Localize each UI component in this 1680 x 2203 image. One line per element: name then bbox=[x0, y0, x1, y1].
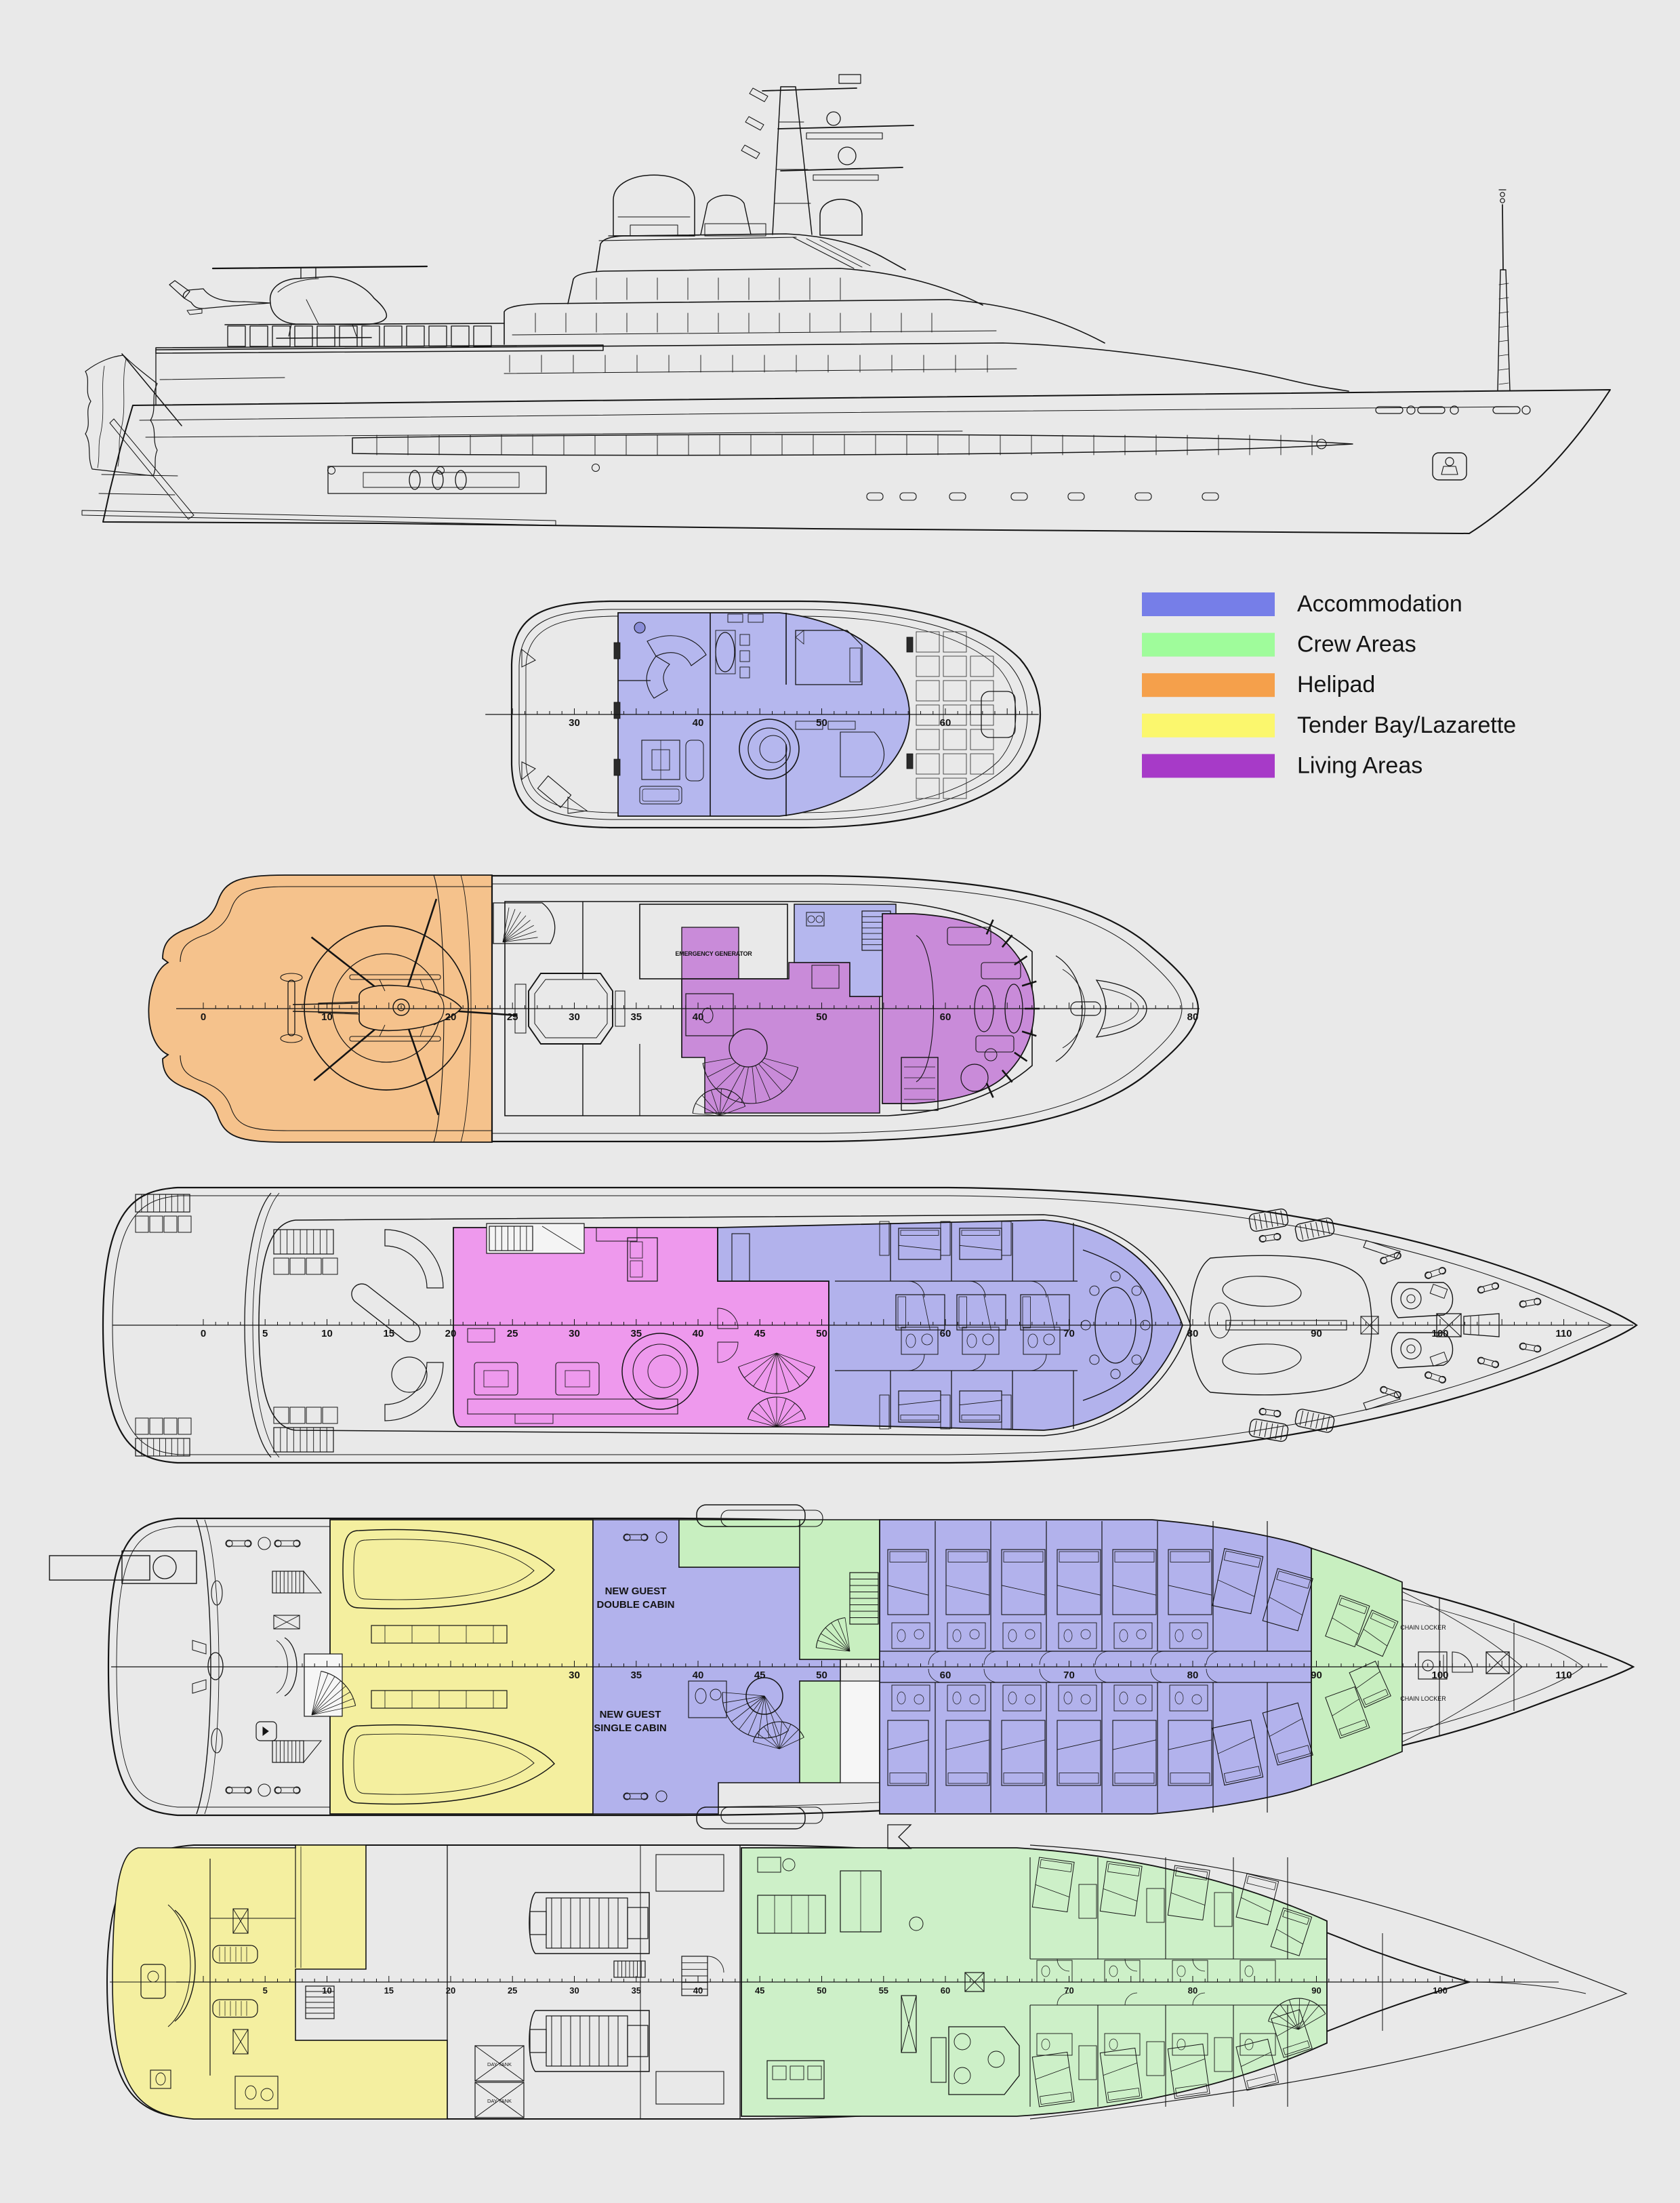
svg-text:60: 60 bbox=[941, 1985, 950, 1996]
svg-text:25: 25 bbox=[507, 1011, 518, 1023]
svg-text:Accommodation: Accommodation bbox=[1297, 591, 1462, 617]
svg-text:25: 25 bbox=[507, 1328, 518, 1339]
svg-text:CHAIN LOCKER: CHAIN LOCKER bbox=[1400, 1695, 1446, 1702]
svg-text:70: 70 bbox=[1063, 1670, 1075, 1681]
svg-text:20: 20 bbox=[445, 1011, 457, 1023]
svg-text:25: 25 bbox=[508, 1985, 517, 1996]
svg-text:40: 40 bbox=[693, 1011, 704, 1023]
svg-text:SINGLE CABIN: SINGLE CABIN bbox=[594, 1722, 667, 1734]
svg-text:Living Areas: Living Areas bbox=[1297, 752, 1422, 778]
svg-text:50: 50 bbox=[816, 1011, 827, 1023]
svg-text:EMERGENCY GENERATOR: EMERGENCY GENERATOR bbox=[675, 950, 752, 957]
svg-text:90: 90 bbox=[1311, 1670, 1322, 1681]
svg-text:DAY TANK: DAY TANK bbox=[487, 2061, 512, 2067]
svg-text:60: 60 bbox=[940, 1328, 951, 1339]
svg-text:0: 0 bbox=[201, 1328, 206, 1339]
svg-text:100: 100 bbox=[1433, 1985, 1448, 1996]
svg-text:Tender Bay/Lazarette: Tender Bay/Lazarette bbox=[1297, 712, 1516, 738]
svg-text:80: 80 bbox=[1187, 1328, 1199, 1339]
svg-text:CHAIN LOCKER: CHAIN LOCKER bbox=[1400, 1624, 1446, 1631]
svg-text:45: 45 bbox=[754, 1670, 766, 1681]
svg-text:45: 45 bbox=[755, 1985, 764, 1996]
svg-text:80: 80 bbox=[1187, 1670, 1199, 1681]
svg-text:30: 30 bbox=[569, 1670, 580, 1681]
svg-text:40: 40 bbox=[693, 1670, 704, 1681]
svg-text:35: 35 bbox=[632, 1985, 641, 1996]
svg-text:40: 40 bbox=[693, 1985, 703, 1996]
svg-text:80: 80 bbox=[1188, 1985, 1197, 1996]
svg-text:100: 100 bbox=[1431, 1670, 1448, 1681]
svg-text:55: 55 bbox=[879, 1985, 888, 1996]
svg-text:35: 35 bbox=[630, 1670, 642, 1681]
svg-text:35: 35 bbox=[630, 1328, 642, 1339]
svg-text:Crew Areas: Crew Areas bbox=[1297, 632, 1416, 658]
svg-text:45: 45 bbox=[754, 1328, 766, 1339]
svg-text:50: 50 bbox=[816, 1670, 827, 1681]
svg-text:50: 50 bbox=[817, 1985, 826, 1996]
svg-text:70: 70 bbox=[1063, 1328, 1075, 1339]
svg-text:DOUBLE CABIN: DOUBLE CABIN bbox=[597, 1599, 675, 1611]
svg-text:10: 10 bbox=[322, 1985, 331, 1996]
svg-text:15: 15 bbox=[384, 1985, 394, 1996]
svg-text:90: 90 bbox=[1311, 1985, 1321, 1996]
svg-text:100: 100 bbox=[1431, 1328, 1448, 1339]
svg-text:30: 30 bbox=[569, 1328, 580, 1339]
svg-text:NEW GUEST: NEW GUEST bbox=[605, 1585, 667, 1597]
svg-text:DAY TANK: DAY TANK bbox=[487, 2098, 512, 2104]
svg-text:20: 20 bbox=[446, 1985, 455, 1996]
svg-text:90: 90 bbox=[1311, 1328, 1322, 1339]
svg-text:110: 110 bbox=[1555, 1670, 1572, 1681]
svg-text:50: 50 bbox=[816, 717, 827, 729]
svg-text:40: 40 bbox=[693, 1328, 704, 1339]
svg-text:5: 5 bbox=[262, 1328, 268, 1339]
svg-text:NEW GUEST: NEW GUEST bbox=[600, 1709, 661, 1720]
svg-text:40: 40 bbox=[693, 717, 704, 729]
svg-text:5: 5 bbox=[263, 1985, 268, 1996]
svg-text:35: 35 bbox=[630, 1011, 642, 1023]
svg-text:10: 10 bbox=[321, 1328, 333, 1339]
svg-text:110: 110 bbox=[1555, 1328, 1572, 1339]
svg-text:0: 0 bbox=[201, 1011, 206, 1023]
svg-text:30: 30 bbox=[569, 1985, 579, 1996]
svg-text:20: 20 bbox=[445, 1328, 457, 1339]
svg-text:60: 60 bbox=[940, 1011, 951, 1023]
svg-text:10: 10 bbox=[321, 1011, 333, 1023]
svg-text:60: 60 bbox=[940, 717, 951, 729]
svg-text:50: 50 bbox=[816, 1328, 827, 1339]
svg-text:60: 60 bbox=[940, 1670, 951, 1681]
svg-text:30: 30 bbox=[569, 717, 580, 729]
svg-text:30: 30 bbox=[569, 1011, 580, 1023]
svg-text:80: 80 bbox=[1187, 1011, 1199, 1023]
svg-text:70: 70 bbox=[1064, 1985, 1073, 1996]
svg-text:15: 15 bbox=[383, 1328, 394, 1339]
svg-text:Helipad: Helipad bbox=[1297, 672, 1375, 698]
